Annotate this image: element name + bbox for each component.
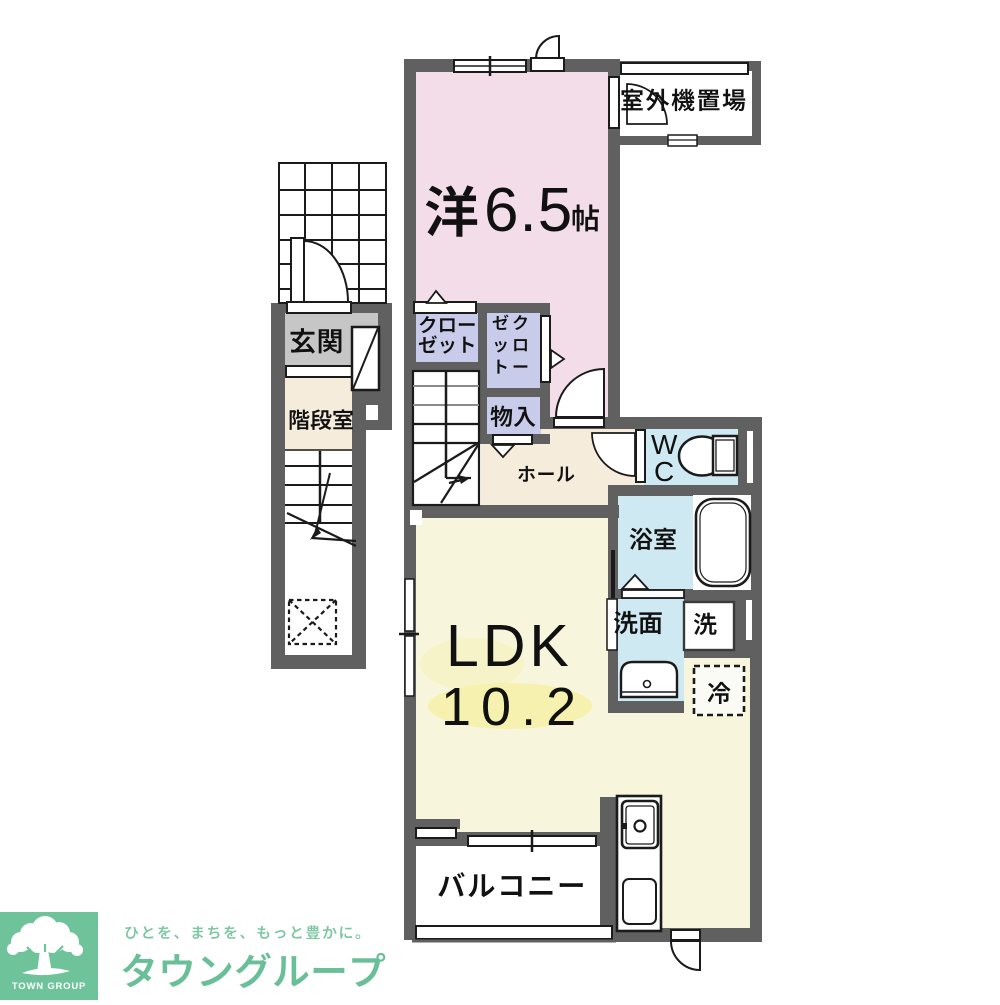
svg-text:LDK: LDK (446, 613, 573, 679)
svg-text:C: C (654, 456, 674, 487)
svg-text:TOWN GROUP: TOWN GROUP (12, 981, 86, 992)
svg-text:10.2: 10.2 (441, 677, 586, 737)
svg-text:6.5: 6.5 (484, 176, 573, 245)
